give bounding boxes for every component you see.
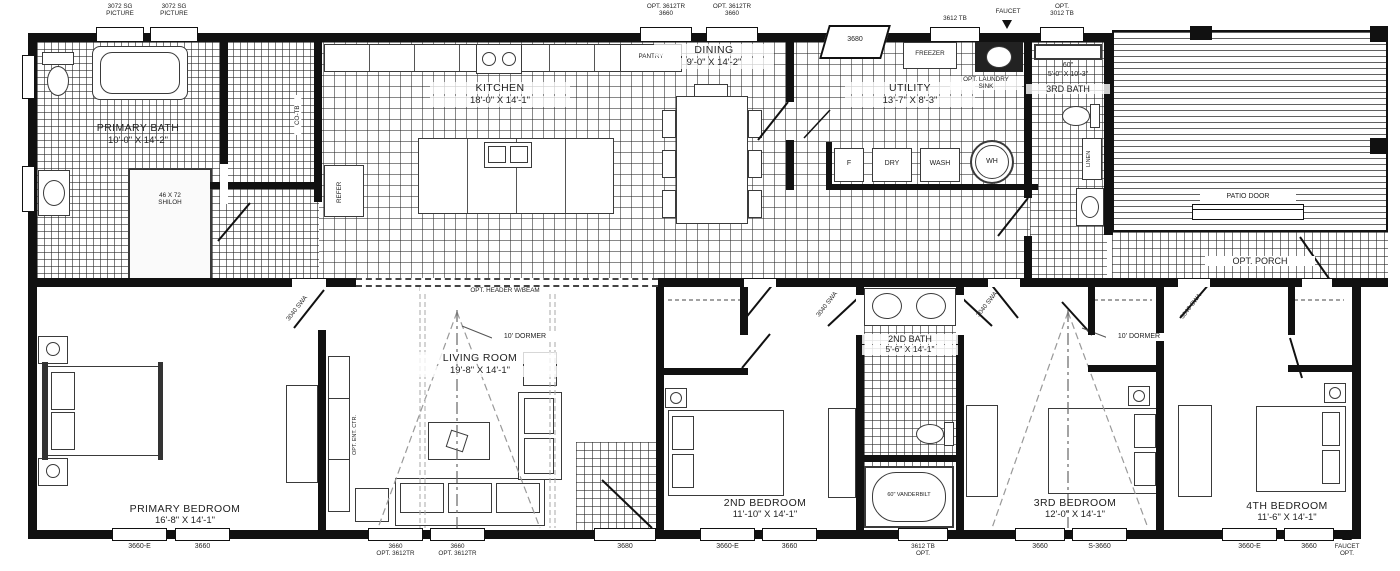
fourth-bedroom-dims: 11'-6" X 14'-1": [1212, 513, 1362, 524]
patio-door[interactable]: [1192, 204, 1304, 220]
gap-br2-door: [744, 279, 776, 287]
gap-bath-hall: [220, 164, 228, 204]
wall-br4-closet-b: [1288, 365, 1361, 372]
dining-chair-r3: [748, 190, 762, 218]
dining-chair-l1: [662, 110, 676, 138]
wall-bath-closet: [220, 42, 228, 164]
sofa-cushion-3: [496, 483, 540, 513]
picture-window-2: [150, 27, 198, 42]
entertainment-center-tv: [328, 398, 350, 460]
bath2-sink-1: [872, 293, 902, 319]
wall-br3-br4: [1156, 283, 1164, 530]
porch-post-1: [1190, 26, 1212, 40]
dining-window-1: [640, 27, 692, 42]
faucet-label: FAUCET: [985, 8, 1031, 15]
refrigerator-label: REFER: [336, 172, 343, 212]
br2-window-1-label: 3660-E: [700, 543, 755, 551]
toilet-bowl-bath3: [1062, 106, 1090, 126]
living-room-dims: 19'-8" X 14'-1": [400, 366, 560, 377]
bathtub-inner: [100, 52, 180, 94]
opt-porch-label: OPT. PORCH: [1205, 256, 1315, 266]
opt-header-opening: [356, 278, 658, 287]
utility-dims: 13'-7" X 8'-3": [845, 96, 975, 107]
br3-pillow-2: [1134, 452, 1156, 486]
water-heater-label: WH: [970, 158, 1014, 166]
toilet-tank-primary: [42, 52, 74, 65]
pbr-footboard: [158, 362, 163, 460]
primary-bedroom-name: PRIMARY BEDROOM: [80, 503, 290, 515]
pbr-dresser: [286, 385, 318, 483]
wall-dining-utility: [786, 42, 794, 102]
opt-laundry-sink-label: OPT. LAUNDRY SINK: [950, 76, 1022, 90]
dining-chair-l3: [662, 190, 676, 218]
wall-br3-closet-l: [1088, 283, 1095, 335]
floor-plan: PATIO DOOR OPT. PORCH 3072 SG PICTURE 30…: [0, 0, 1400, 571]
dining-dims: 9'-0" X 14'-2": [654, 58, 774, 69]
pbr-lamp-1: [46, 342, 60, 356]
bath2-window-label: 3612 TB OPT.: [896, 543, 950, 557]
wall-br2-closet-r: [740, 283, 748, 335]
loveseat-cushion-2: [524, 438, 554, 474]
bath3-window-label: OPT. 3012 TB: [1036, 3, 1088, 17]
br2-dresser: [828, 408, 856, 498]
living-room-name: LIVING ROOM: [400, 352, 560, 364]
br3-dresser: [966, 405, 998, 497]
picture-window-1-label: 3072 SG PICTURE: [92, 3, 148, 17]
wall-utility-bottom: [826, 184, 1038, 190]
second-bath-dims: 5'-6" X 14'-1": [862, 345, 958, 355]
toilet-bowl-bath2: [916, 424, 944, 444]
dryer-label: DRY: [872, 160, 912, 168]
porch-post-3: [1370, 138, 1388, 154]
shiloh-shower-label: 46 X 72 SHILOH: [130, 192, 210, 206]
br3-window-1: [1015, 528, 1065, 541]
lr-window-1: [368, 528, 423, 541]
dining-chair-r1: [748, 110, 762, 138]
bath3-window: [1040, 27, 1084, 42]
bath3-name: 3RD BATH: [1026, 84, 1110, 94]
opt-header-label: OPT. HEADER W/BEAM: [420, 287, 590, 294]
entry-floor-tile: [576, 442, 658, 530]
second-bath-name: 2ND BATH: [862, 334, 958, 344]
primary-bath-dims: 10'-0" X 14'-2": [58, 136, 218, 147]
bath3-shower-size: 60": [1030, 62, 1106, 70]
br4-lamp-circle: [1329, 387, 1341, 399]
dining-table: [676, 96, 748, 224]
br2-lamp-circle: [670, 392, 682, 404]
bath2-sink-2: [916, 293, 946, 319]
refrigerator: [324, 165, 364, 217]
third-bedroom-dims: 12'-0" X 14'-1": [1000, 510, 1150, 521]
bath3-sink: [1081, 196, 1099, 218]
second-bedroom-dims: 11'-10" X 14'-1": [690, 510, 840, 521]
pbr-window-2-label: 3660: [175, 543, 230, 551]
faucet-opt-arrow-icon: [1342, 531, 1352, 540]
picture-window-2-label: 3072 SG PICTURE: [146, 3, 202, 17]
br2-pillow-1: [672, 416, 694, 450]
picture-window-1: [96, 27, 144, 42]
br3-door-swing-label: 3040 SWA: [972, 286, 1002, 322]
loveseat-cushion-1: [524, 398, 554, 434]
fourth-bedroom-name: 4TH BEDROOM: [1212, 500, 1362, 512]
dining-name: DINING: [654, 44, 774, 56]
wall-pbr-living: [318, 330, 326, 530]
wall-living-br2: [656, 283, 664, 530]
gap-porch-door: [1302, 279, 1332, 287]
shiloh-shower: [128, 168, 212, 280]
sofa-cushion-1: [400, 483, 444, 513]
faucet-opt-label: FAUCET OPT.: [1326, 543, 1368, 557]
entry-door[interactable]: [594, 528, 656, 541]
primary-bedroom-dims: 16'-8" X 14'-1": [80, 516, 290, 527]
pbr-window-1-label: 3660-E: [112, 543, 167, 551]
wall-br2-closet-b: [660, 368, 748, 375]
br4-window-1-label: 3660-E: [1222, 543, 1277, 551]
kitchen-name: KITCHEN: [430, 82, 570, 94]
br4-pillow-2: [1322, 450, 1340, 484]
wall-br4-closet-l: [1288, 283, 1295, 335]
dormer-living-label: 10' DORMER: [492, 333, 558, 341]
sofa-cushion-2: [448, 483, 492, 513]
island-sink-bowl-2: [510, 146, 528, 163]
opt-ent-center-label: OPT. ENT. CTR.: [352, 400, 358, 470]
freezer-label: FREEZER: [904, 50, 956, 57]
second-bedroom-name: 2ND BEDROOM: [690, 497, 840, 509]
armchair-bottom: [355, 488, 389, 522]
bath2-window: [898, 528, 948, 541]
wall-closet-kitchen: [314, 42, 322, 202]
wall-bath2-tub: [856, 455, 964, 462]
br3-lamp-circle: [1133, 390, 1145, 402]
utility-vanity-sink: [986, 46, 1012, 68]
br3-window-2: [1072, 528, 1127, 541]
pbr-headboard: [42, 362, 48, 460]
faucet-arrow-icon: [1002, 20, 1012, 29]
wall-br3-closet-b: [1088, 365, 1160, 372]
top-entry-door-label: 3680: [830, 36, 880, 44]
pbr-pillow-1: [51, 372, 75, 410]
pbr-pillow-2: [51, 412, 75, 450]
range-burner-2: [502, 52, 516, 66]
bath-side-window-1: [22, 55, 35, 99]
toilet-tank-bath2: [944, 422, 954, 446]
pbr-lamp-2: [46, 464, 60, 478]
br2-door-swing-label: 3040 SWA: [812, 286, 842, 322]
gap-br3-door: [988, 279, 1020, 287]
dining-window-2-label: OPT. 3612TR 3660: [702, 3, 762, 17]
wall-utility-left: [826, 142, 832, 190]
br4-dresser: [1178, 405, 1212, 497]
bath3-linen-label: LINEN: [1086, 142, 1092, 176]
bath3-shower: [1034, 44, 1102, 60]
dining-head-chair: [694, 84, 728, 97]
br4-pillow-1: [1322, 412, 1340, 446]
pbr-door-swing-label: 3040 SWA: [282, 290, 312, 326]
bath-side-window-2: [22, 166, 35, 212]
pbr-window-2: [175, 528, 230, 541]
lr-window-2: [430, 528, 485, 541]
gap-br4-door: [1178, 279, 1210, 287]
dining-chair-l2: [662, 150, 676, 178]
primary-bath-name: PRIMARY BATH: [58, 122, 218, 134]
lr-window-2-label: 3660 OPT. 3612TR: [426, 543, 489, 557]
gap-bath2-right: [956, 295, 964, 335]
primary-bath-sink: [43, 180, 65, 206]
wall-dining-utility-2: [786, 140, 794, 190]
range-burner-1: [482, 52, 496, 66]
br2-window-2-label: 3660: [762, 543, 817, 551]
toilet-bowl-primary: [47, 66, 69, 96]
br4-window-2: [1284, 528, 1334, 541]
porch-post-2: [1370, 26, 1388, 42]
br2-window-2: [762, 528, 817, 541]
bath3-shower-dims: 5'-0" X 10'-3": [1026, 71, 1110, 79]
washer-label: WASH: [920, 160, 960, 168]
br2-window-1: [700, 528, 755, 541]
island-sink-bowl-1: [488, 146, 506, 163]
dormer-third-label: 10' DORMER: [1106, 333, 1172, 341]
utility-window: [930, 27, 980, 42]
gap-bath2-left: [856, 295, 864, 335]
br4-door-swing-label: 3040 SWA: [1176, 288, 1206, 324]
entry-door-label: 3680: [596, 543, 654, 551]
br2-pillow-2: [672, 454, 694, 488]
dining-window-2: [706, 27, 758, 42]
gap-pbr-door: [292, 279, 326, 287]
furnace-label: F: [834, 160, 864, 168]
br3-pillow-1: [1134, 414, 1156, 448]
porch-deck: [1112, 30, 1388, 232]
br3-window-1-label: 3660: [1015, 543, 1065, 551]
br3-window-2-label: S-3660: [1072, 543, 1127, 551]
patio-door-label: PATIO DOOR: [1200, 193, 1296, 201]
dining-chair-r2: [748, 150, 762, 178]
dining-window-1-label: OPT. 3612TR 3660: [636, 3, 696, 17]
br4-window-1: [1222, 528, 1277, 541]
third-bedroom-name: 3RD BEDROOM: [1000, 497, 1150, 509]
pbr-window-1: [112, 528, 167, 541]
kitchen-dims: 18'-0" X 14'-1": [430, 96, 570, 107]
wall-utility-bath3-low: [1024, 236, 1032, 279]
utility-window-label: 3612 TB: [928, 15, 982, 22]
toilet-tank-bath3: [1090, 104, 1100, 128]
lr-window-1-label: 3660 OPT. 3612TR: [364, 543, 427, 557]
closet-co-tb-label: CO-TB: [294, 95, 301, 135]
vanderbilt-tub-label: 60" VANDERBILT: [864, 492, 954, 498]
